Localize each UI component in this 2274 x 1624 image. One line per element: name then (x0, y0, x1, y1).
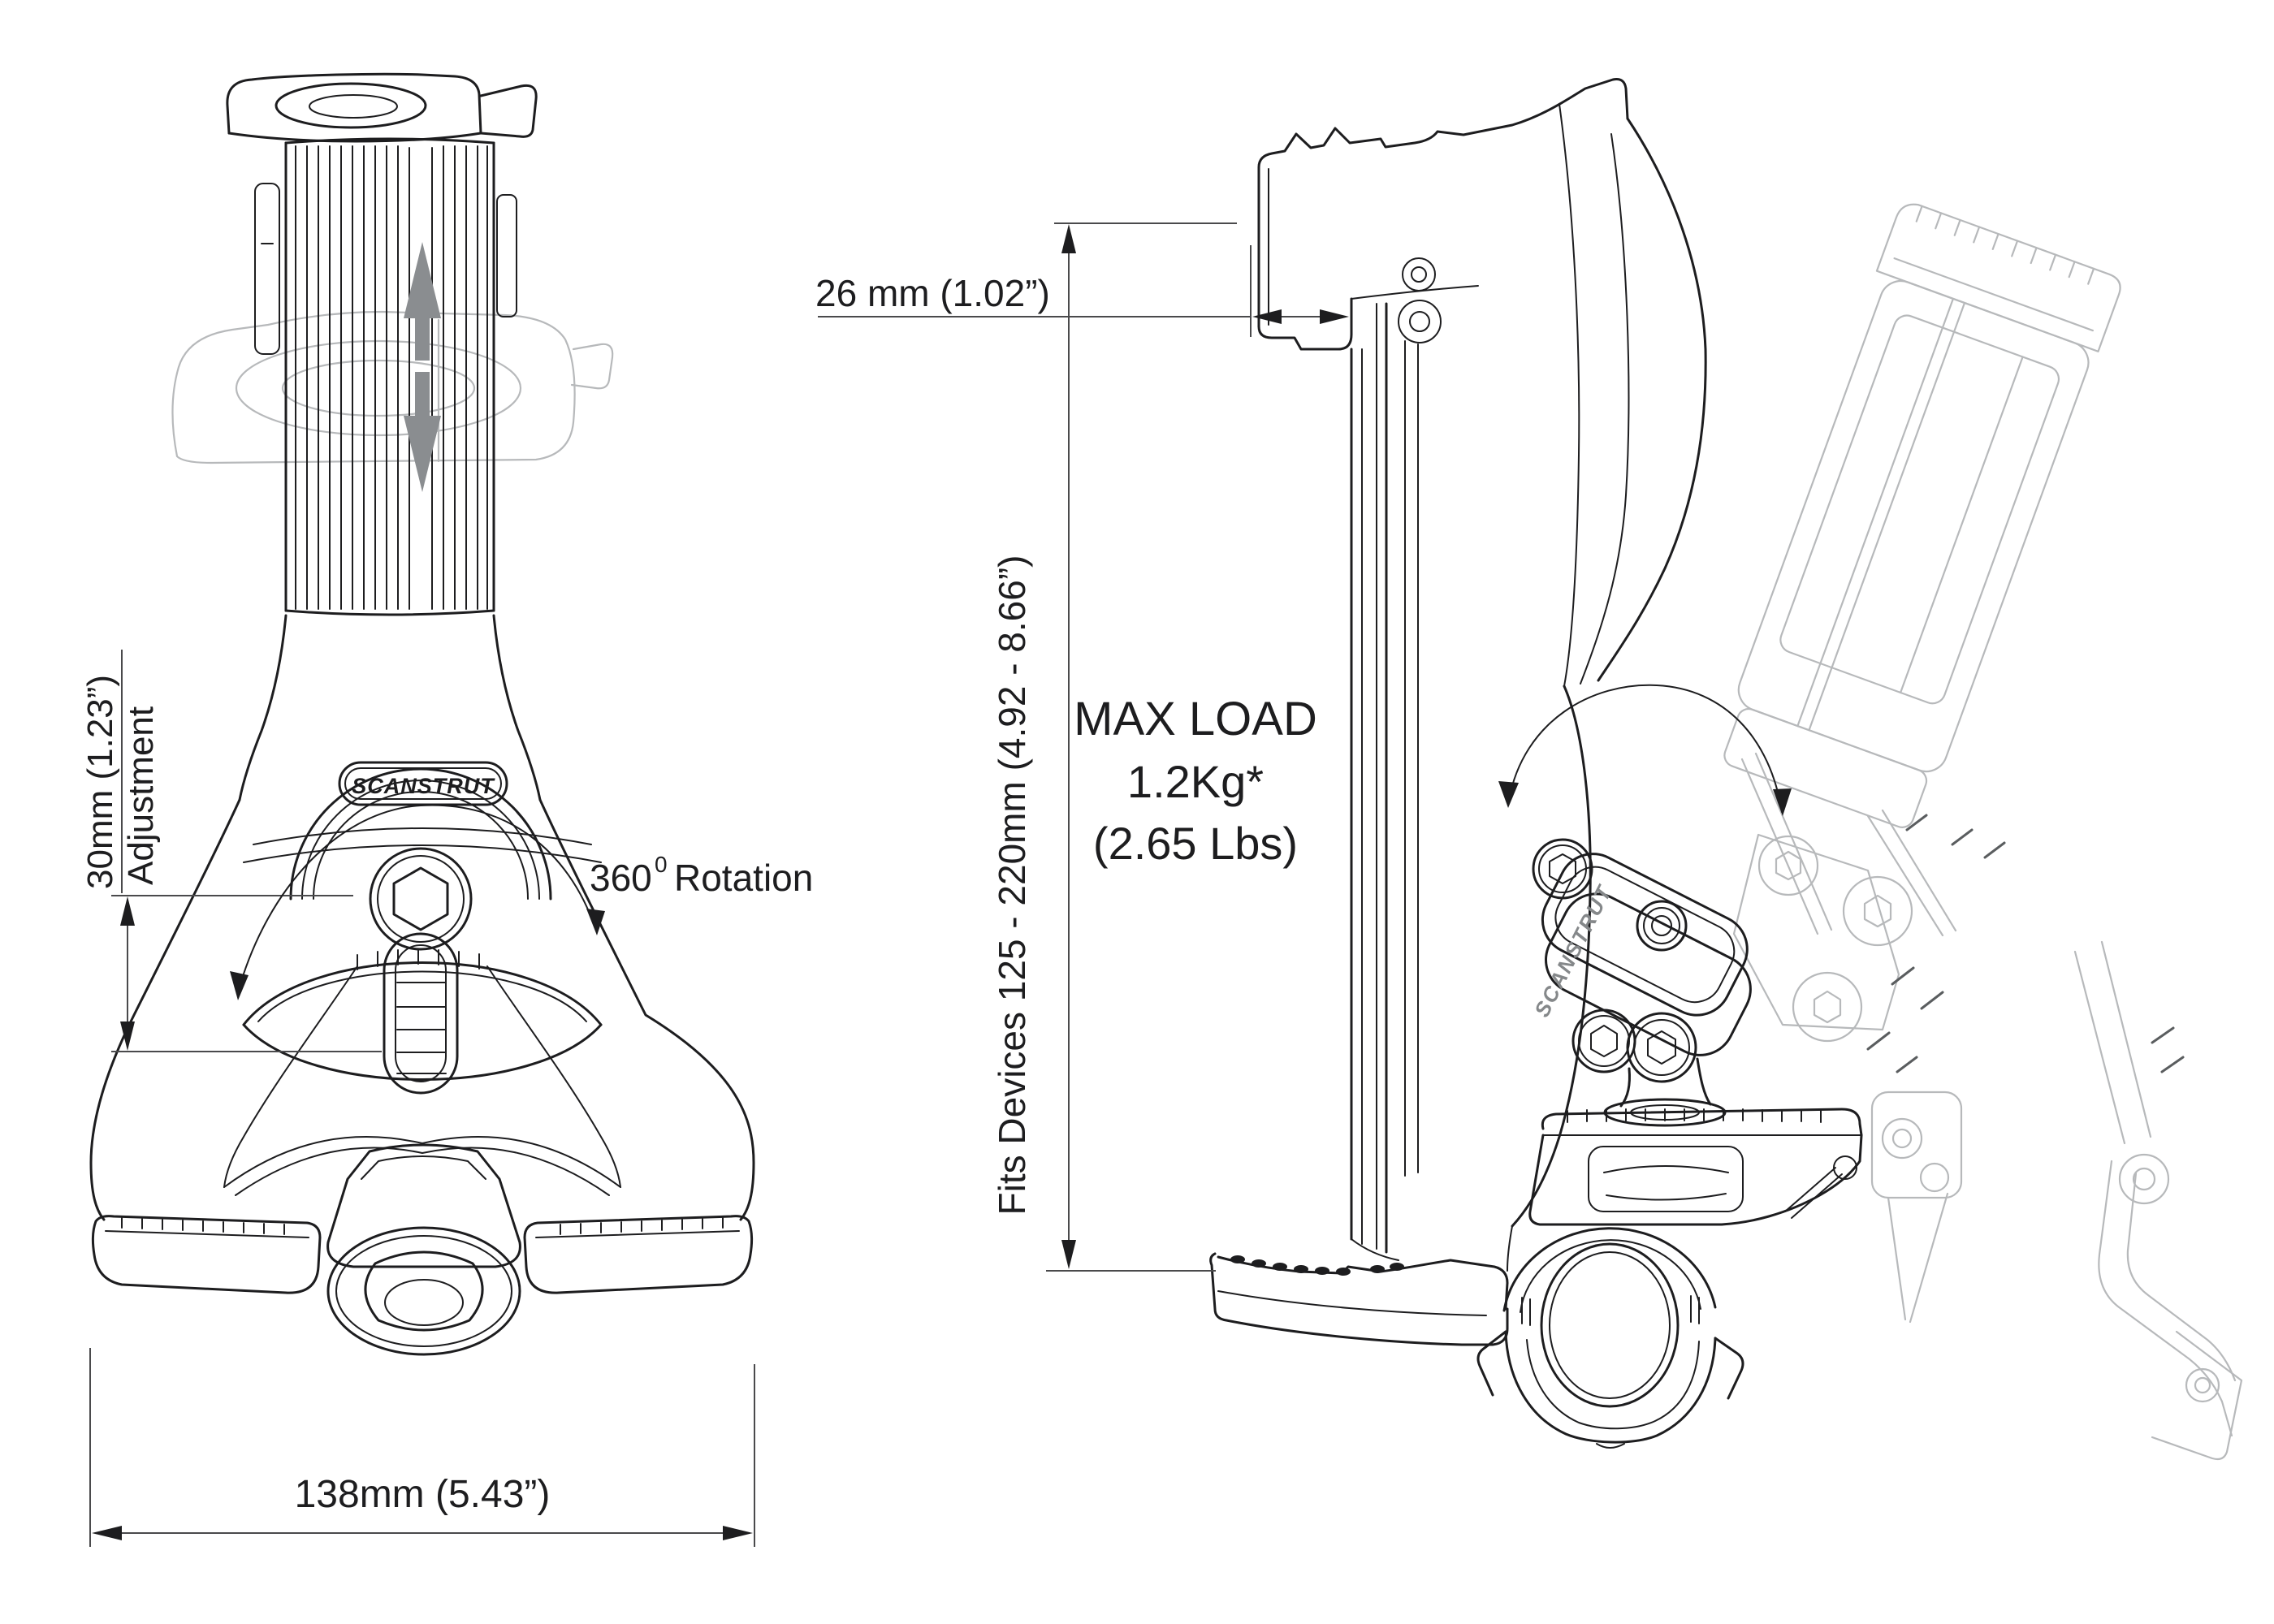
back-fin (1559, 104, 1705, 686)
rotation-label: Rotation (674, 857, 813, 899)
front-view: SCANSTRUT (80, 74, 813, 1547)
tilt-arc-icon (1498, 685, 1792, 816)
side-view: Fits Devices 125 - 220mm (4.92 - 8.66”) … (815, 79, 1705, 1345)
ghost-expanded-clamp (172, 312, 612, 463)
height-dimension: Fits Devices 125 - 220mm (4.92 - 8.66”) (991, 223, 1237, 1271)
max-load-note: MAX LOAD 1.2Kg* (2.65 Lbs) (1074, 693, 1317, 869)
technical-drawing-page: SCANSTRUT (0, 0, 2274, 1624)
adjustment-label: Adjustment (121, 706, 161, 885)
rotation-value: 360 (590, 857, 652, 899)
clamp-lever (1785, 1156, 1857, 1218)
rail-clamp-base (1478, 1109, 1861, 1448)
top-jaw (1259, 79, 1628, 349)
device-range-label: Fits Devices 125 - 220mm (4.92 - 8.66”) (991, 555, 1033, 1216)
adjustment-dimension-label: 30mm (1.23”) (80, 675, 120, 889)
pivot-hub (291, 769, 551, 1093)
max-load-value: 1.2Kg* (1127, 756, 1264, 807)
max-load-title: MAX LOAD (1074, 693, 1317, 745)
iso-view: SCANSTRUT (1478, 199, 2242, 1459)
rail-ring (1478, 1229, 1743, 1448)
depth-dimension-label: 26 mm (1.02”) (815, 272, 1050, 314)
ghost-holder (1701, 199, 2125, 835)
mount-body (240, 615, 601, 862)
break-dashes-icon (1868, 815, 2183, 1072)
rotation-sup: 0 (655, 852, 668, 877)
ghost-arm (1734, 754, 2242, 1459)
width-dimension: 138mm (5.43”) (90, 1348, 754, 1547)
rail-channel (1351, 304, 1418, 1252)
knuckle-clamp: SCANSTRUT (1515, 840, 1778, 1082)
width-dimension-label: 138mm (5.43”) (295, 1473, 551, 1516)
base-legs (91, 800, 754, 1354)
screw-bosses (1399, 258, 1441, 343)
bottom-jaw (1211, 1254, 1507, 1345)
adjustment-dimension: 30mm (1.23”) Adjustment (80, 650, 382, 1052)
top-clamp (227, 74, 536, 141)
telescoping-column (255, 139, 517, 615)
max-load-lbs: (2.65 Lbs) (1093, 818, 1298, 869)
